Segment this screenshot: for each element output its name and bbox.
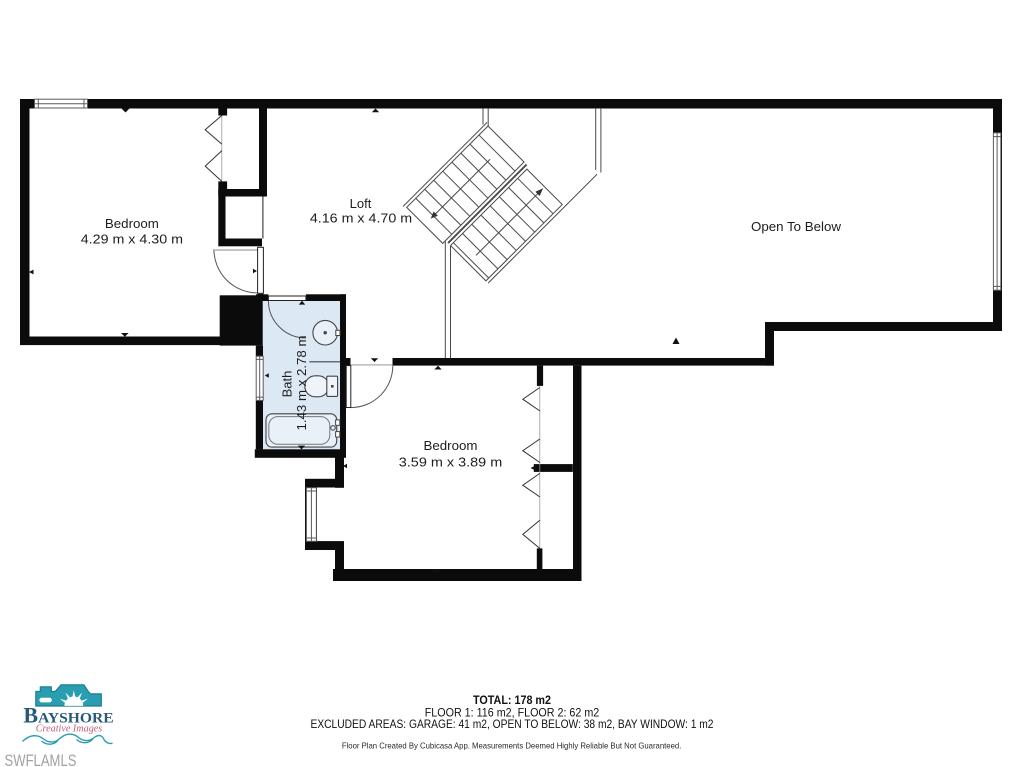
svg-text:3.59 m x 3.89 m: 3.59 m x 3.89 m [399,454,503,469]
svg-text:Open To Below: Open To Below [751,219,842,234]
svg-text:Creative Images: Creative Images [36,723,103,734]
svg-text:Bath: Bath [280,371,295,398]
svg-text:1.43 m x 2.78 m: 1.43 m x 2.78 m [294,336,309,431]
svg-text:SWFLAMLS: SWFLAMLS [5,751,77,767]
svg-text:EXCLUDED AREAS: GARAGE: 41 m2,: EXCLUDED AREAS: GARAGE: 41 m2, OPEN TO B… [311,717,714,731]
svg-text:4.16 m x 4.70 m: 4.16 m x 4.70 m [310,210,412,225]
svg-text:Loft: Loft [350,196,372,211]
svg-text:Bedroom: Bedroom [424,438,478,453]
svg-text:Floor Plan Created By Cubicasa: Floor Plan Created By Cubicasa App. Meas… [342,741,682,751]
svg-text:4.29 m x 4.30 m: 4.29 m x 4.30 m [81,232,183,247]
svg-text:Bedroom: Bedroom [105,216,159,231]
